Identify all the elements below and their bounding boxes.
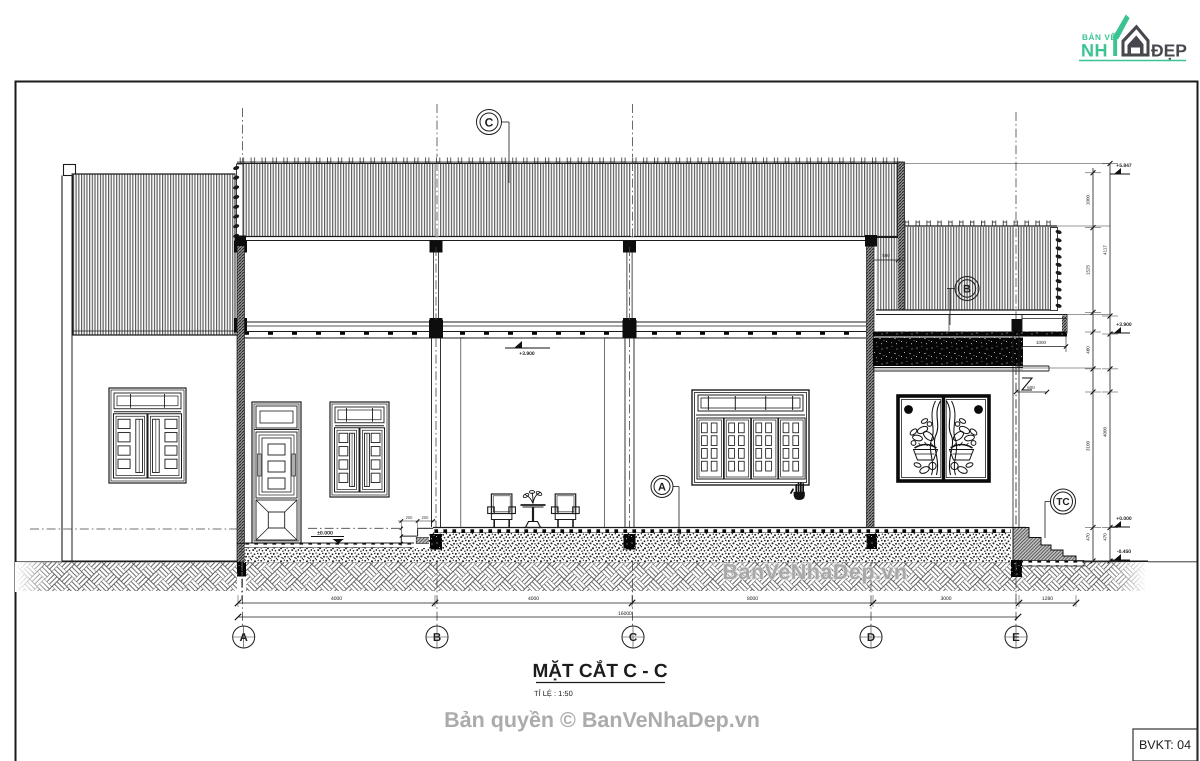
- svg-text:200: 200: [422, 515, 429, 520]
- svg-text:+3.900: +3.900: [519, 351, 535, 357]
- svg-text:500: 500: [882, 253, 890, 258]
- svg-text:+5.847: +5.847: [1116, 163, 1132, 169]
- svg-text:600: 600: [1027, 385, 1035, 390]
- svg-text:ĐẸP: ĐẸP: [1151, 41, 1187, 61]
- svg-text:4117: 4117: [1103, 245, 1108, 255]
- svg-text:+3.900: +3.900: [1116, 322, 1132, 328]
- svg-text:8000: 8000: [747, 596, 758, 602]
- svg-text:4000: 4000: [331, 596, 342, 602]
- svg-text:-0.450: -0.450: [1117, 549, 1131, 555]
- svg-text:BVKT: 04: BVKT: 04: [1139, 738, 1191, 752]
- svg-text:3100: 3100: [1086, 440, 1091, 451]
- svg-text:Bản quyền © BanVeNhaDep.vn: Bản quyền © BanVeNhaDep.vn: [444, 708, 760, 732]
- svg-text:1000: 1000: [1036, 340, 1047, 345]
- svg-text:480: 480: [1086, 346, 1091, 354]
- svg-text:C: C: [485, 115, 494, 129]
- svg-text:470: 470: [1086, 533, 1091, 541]
- svg-text:1525: 1525: [1086, 264, 1091, 275]
- svg-text:16000: 16000: [618, 611, 632, 617]
- svg-text:NH: NH: [1081, 41, 1108, 61]
- svg-text:1280: 1280: [1042, 596, 1053, 602]
- svg-text:200: 200: [406, 515, 413, 520]
- svg-text:±0.000: ±0.000: [317, 531, 333, 537]
- svg-text:4000: 4000: [1103, 426, 1108, 437]
- svg-text:3000: 3000: [940, 596, 951, 602]
- svg-text:MẶT CẮT C - C: MẶT CẮT C - C: [532, 659, 667, 682]
- svg-text:B: B: [963, 283, 971, 295]
- svg-text:BanVeNhaDep.vn: BanVeNhaDep.vn: [722, 560, 907, 584]
- svg-text:TỈ LỆ : 1:50: TỈ LỆ : 1:50: [534, 689, 573, 698]
- svg-text:4000: 4000: [528, 596, 539, 602]
- svg-text:1000: 1000: [1086, 194, 1091, 205]
- svg-text:+0.000: +0.000: [1116, 516, 1132, 522]
- svg-text:A: A: [658, 481, 666, 493]
- svg-text:TC: TC: [1056, 497, 1069, 508]
- svg-text:470: 470: [1103, 533, 1108, 541]
